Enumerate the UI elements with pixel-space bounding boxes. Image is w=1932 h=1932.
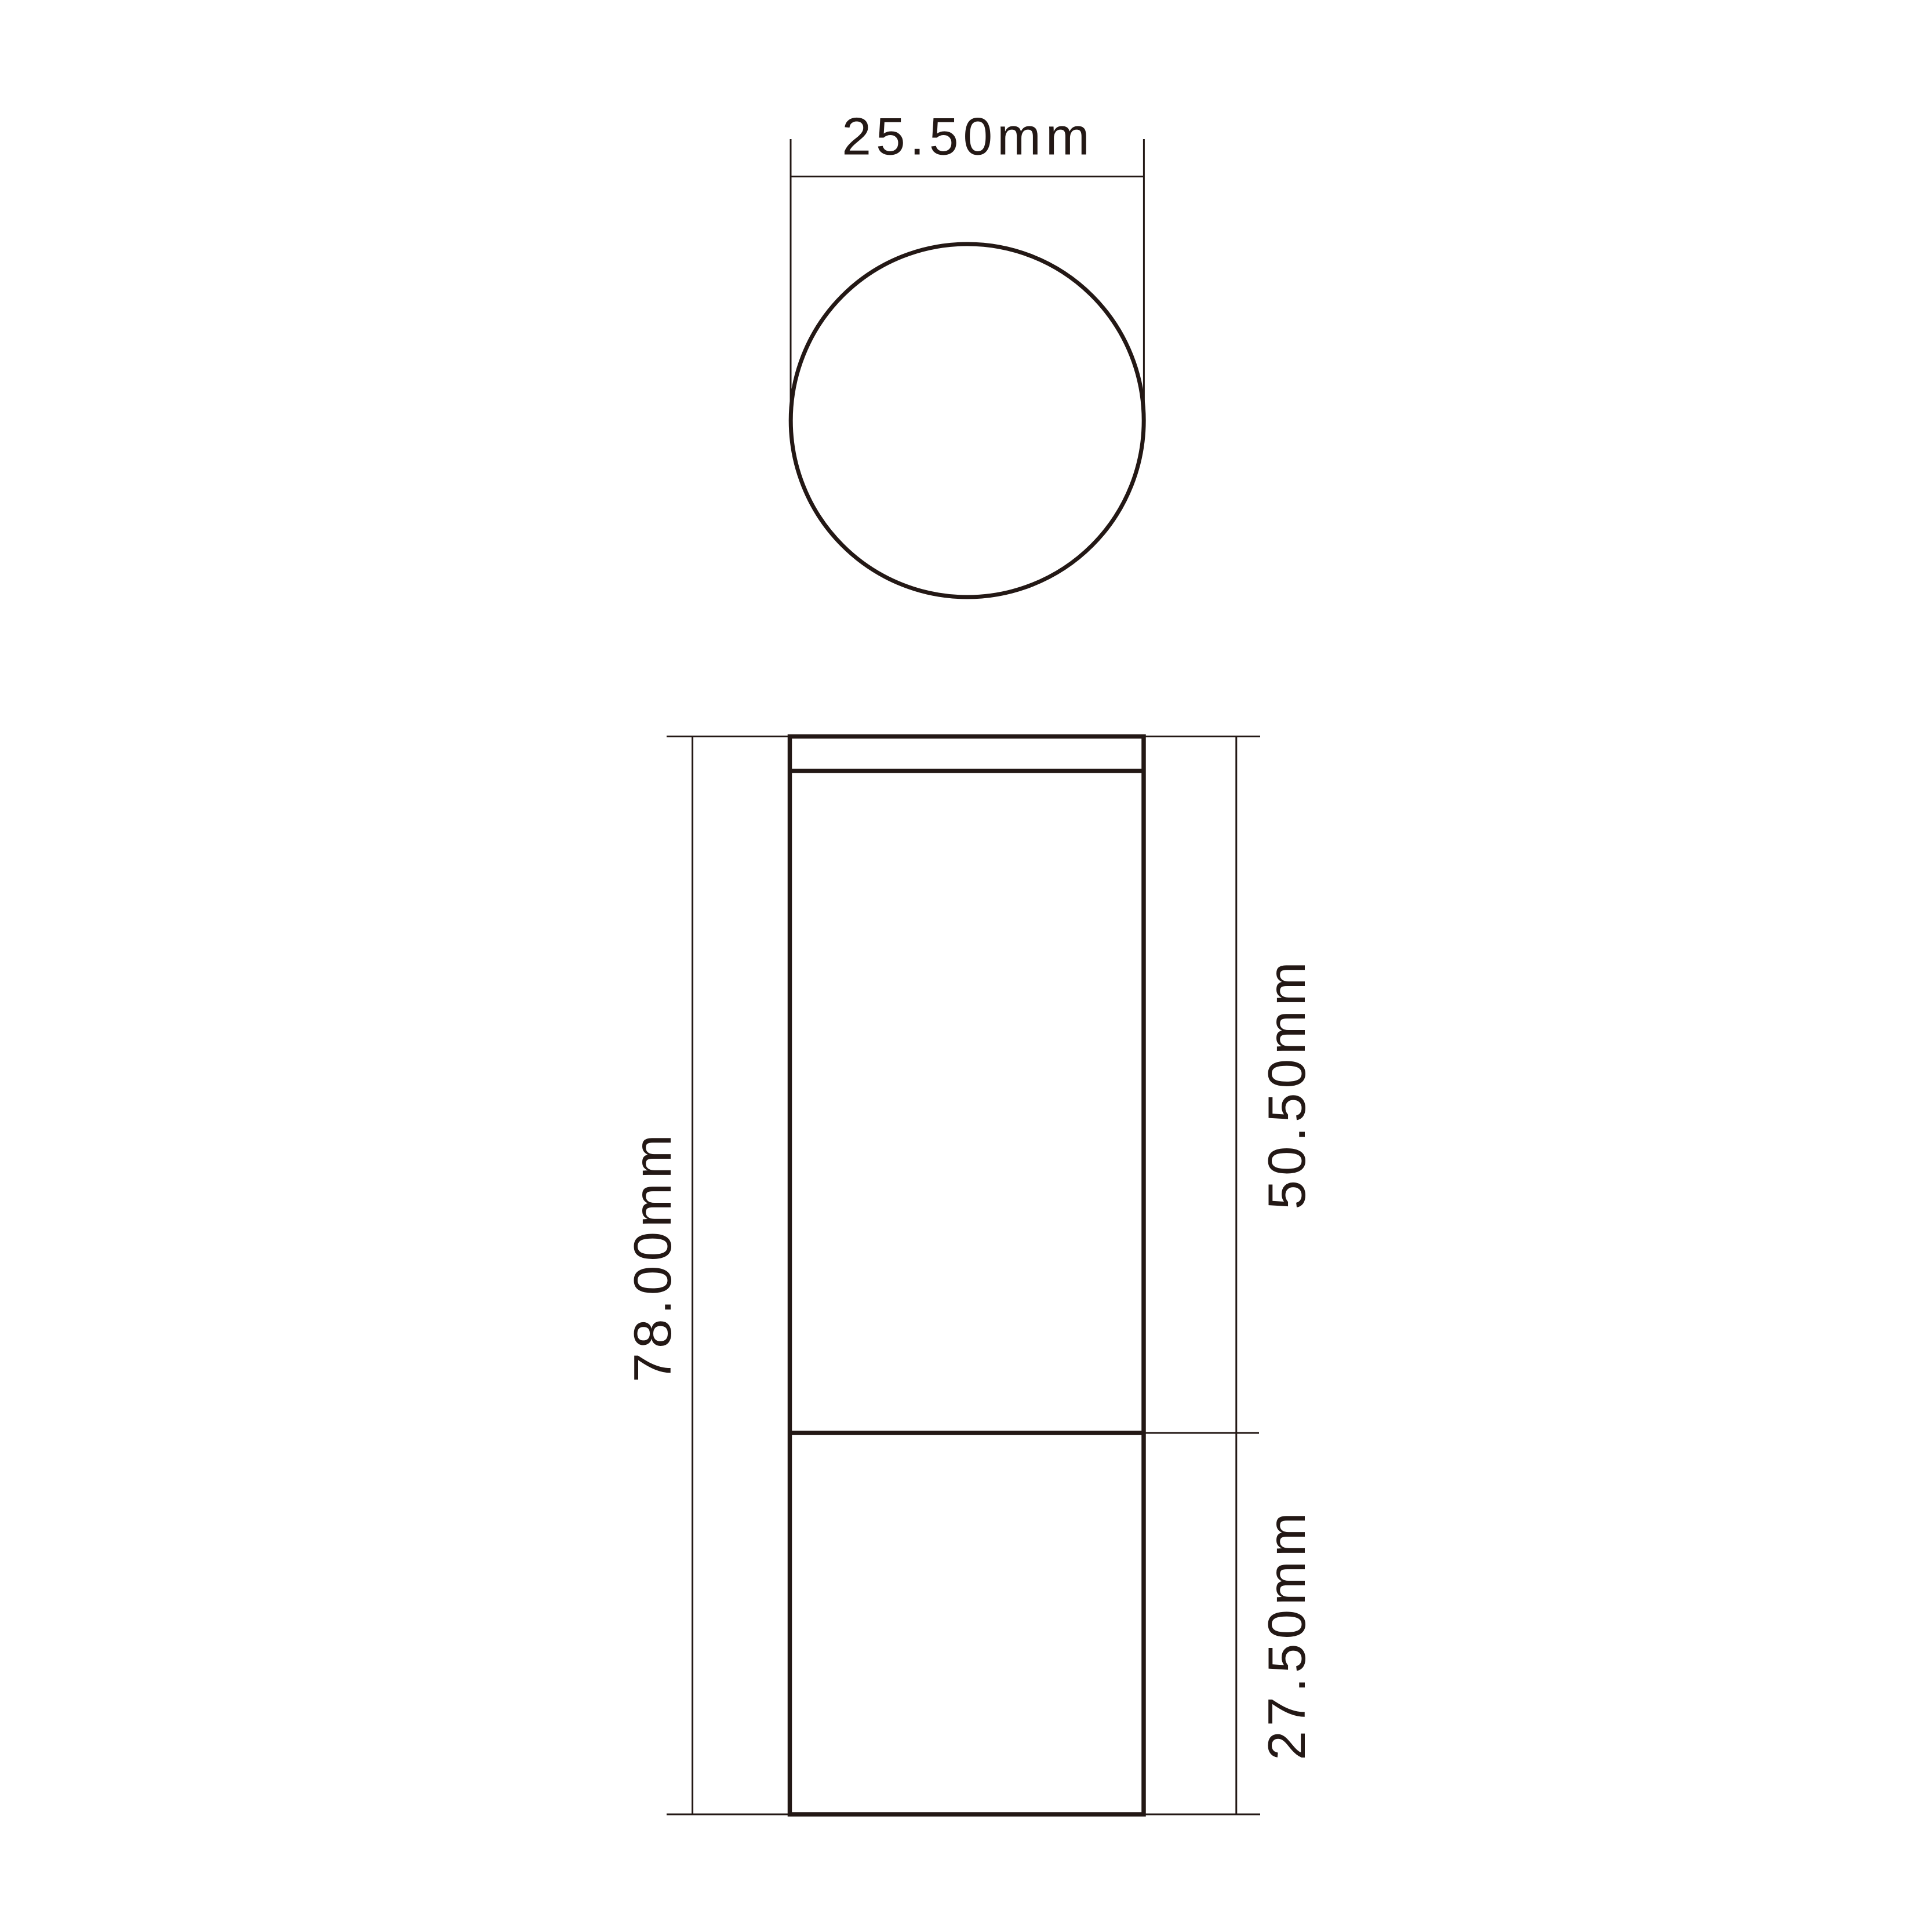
svg-text:78.00mm: 78.00mm <box>624 1130 682 1382</box>
svg-text:50.50mm: 50.50mm <box>1258 957 1316 1209</box>
svg-text:25.50mm: 25.50mm <box>842 108 1094 166</box>
svg-text:27.50mm: 27.50mm <box>1258 1508 1316 1760</box>
